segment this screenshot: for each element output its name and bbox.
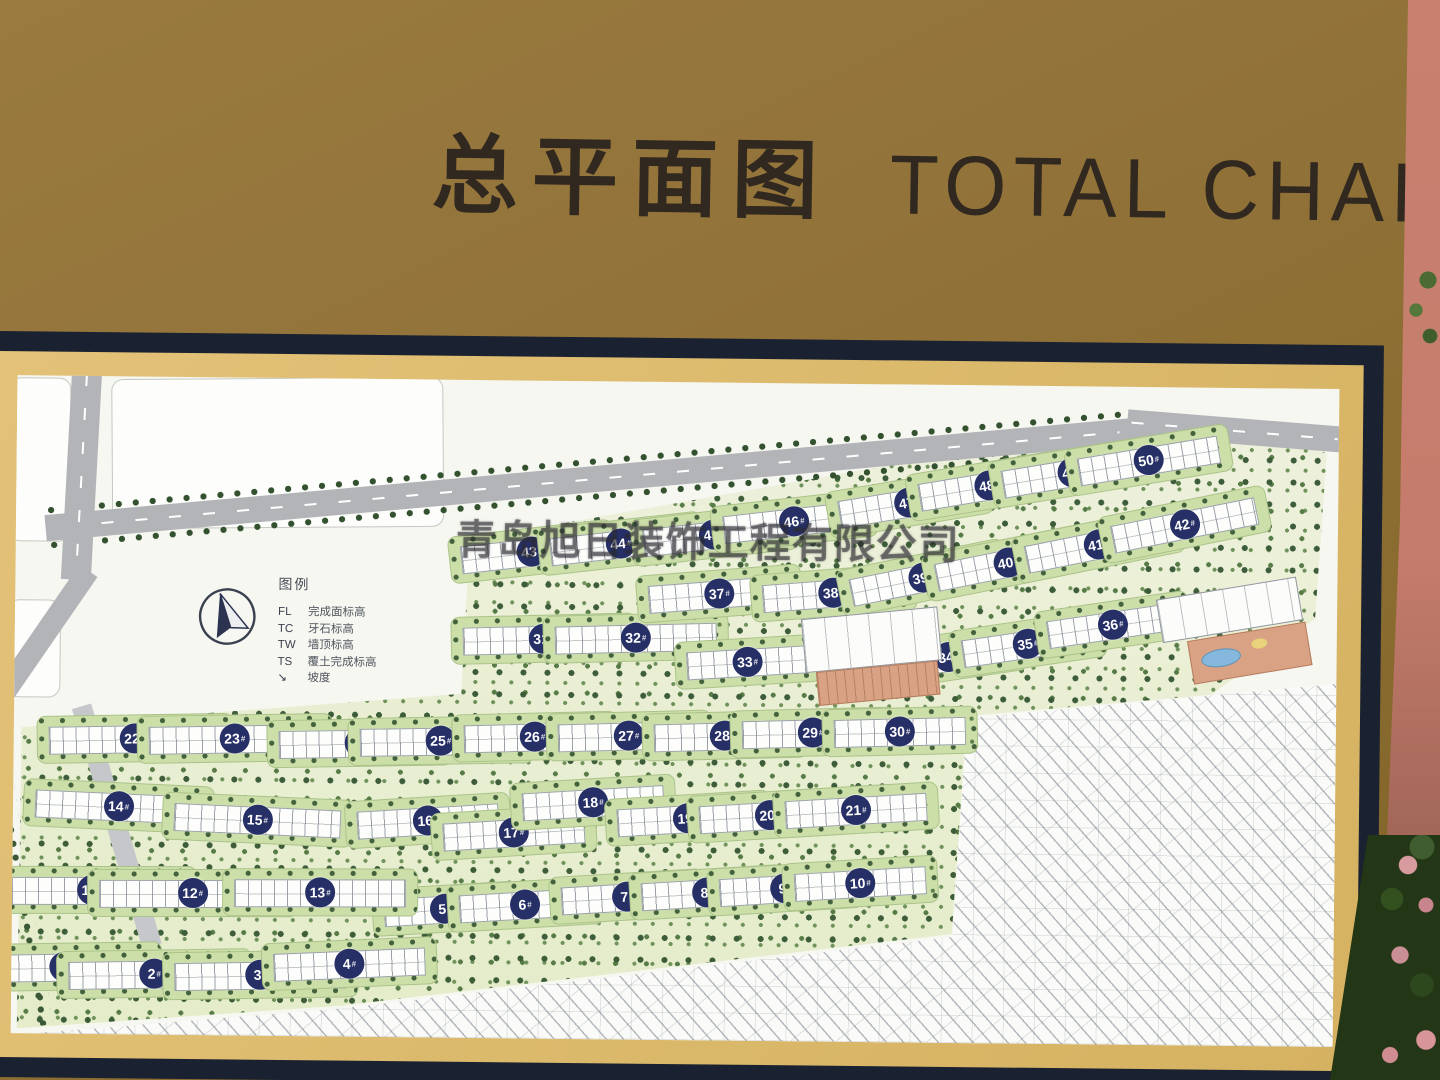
building-number-suffix: # (1118, 619, 1124, 629)
legend-label: 坡度 (307, 670, 330, 687)
building-number-suffix: # (862, 805, 867, 814)
building-number: 36 (1102, 617, 1119, 633)
building-number: 27 (618, 728, 634, 742)
slope-icon: ↘ (277, 670, 307, 687)
building-number: 10 (849, 876, 865, 891)
building-number-suffix: # (124, 802, 129, 811)
building-block: 15# (160, 791, 353, 848)
wall-plant (1406, 250, 1440, 360)
building-number: 18 (582, 795, 598, 810)
building-number: 12 (182, 886, 198, 900)
title-english: TOTAL CHART (889, 137, 1440, 243)
legend-abbr: TC (278, 620, 308, 637)
building-number: 5 (438, 902, 447, 916)
building-number-suffix: # (725, 588, 730, 597)
building-number-suffix: # (156, 969, 161, 978)
building-number: 7 (620, 890, 629, 904)
legend-abbr: FL (278, 604, 308, 621)
title-chinese: 总平面图 (431, 105, 833, 236)
building-number: 21 (845, 803, 861, 818)
building-number: 32 (625, 631, 641, 645)
building-number: 33 (737, 655, 753, 670)
building-number-suffix: # (198, 889, 202, 898)
building-number-suffix: # (753, 657, 758, 666)
building-number-suffix: # (541, 732, 546, 741)
building-number-suffix: # (1154, 454, 1160, 464)
building-number: 2 (148, 967, 156, 981)
legend-label: 墙顶标高 (308, 637, 354, 654)
building-number-suffix: # (527, 900, 532, 909)
legend-label: 牙石标高 (308, 621, 354, 638)
north-compass-icon (188, 578, 267, 660)
building-number: 50 (1137, 452, 1155, 468)
building-number: 37 (708, 586, 725, 601)
building-block: 33# (673, 634, 822, 691)
building-number: 25 (430, 734, 446, 748)
legend-row: TW 墙顶标高 (278, 637, 377, 655)
building-number-suffix: # (635, 731, 640, 740)
building-number-suffix: # (447, 736, 452, 745)
building-block: 21# (772, 781, 941, 839)
road-centerline (75, 375, 88, 575)
building-number-suffix: # (866, 878, 871, 887)
building-number: 28 (714, 728, 730, 742)
building-number: 35 (1016, 636, 1033, 652)
school-facility (798, 599, 957, 713)
building-number: 14 (107, 799, 123, 814)
building-block: 10# (781, 854, 940, 911)
legend-row: TC 牙石标高 (278, 620, 377, 638)
watermark-text: 青岛旭日装饰工程有限公司 (456, 506, 961, 571)
building-number-marker: 13# (305, 877, 335, 907)
map-board-mat: 1#2#3#4#5#6#7#8#9#10#11#12#13#14#15#16#1… (0, 351, 1364, 1071)
legend-label: 完成面标高 (308, 604, 366, 621)
building-number: 23 (224, 731, 240, 745)
legend-row: TS 覆土完成标高 (277, 653, 376, 671)
building-number-suffix: # (906, 727, 911, 736)
legend-row: FL 完成面标高 (278, 604, 377, 622)
building-number: 38 (822, 585, 839, 600)
building-number: 30 (889, 724, 905, 738)
building-number: 3 (254, 968, 262, 982)
building-number: 26 (524, 730, 540, 744)
legend-label: 覆土完成标高 (307, 654, 376, 671)
building-block: 30# (821, 706, 978, 758)
building-number-suffix: # (263, 815, 268, 824)
sign-title: 总平面图 TOTAL CHART (431, 105, 1353, 244)
building-block: 13# (222, 868, 418, 916)
building-number-suffix: # (351, 959, 356, 968)
building-number: 4 (342, 957, 350, 971)
legend-abbr: TW (278, 637, 308, 654)
map-board-frame: 1#2#3#4#5#6#7#8#9#10#11#12#13#14#15#16#1… (0, 331, 1384, 1080)
building-number: 6 (518, 897, 527, 911)
pool (1200, 646, 1242, 670)
legend: 图例 FL 完成面标高 TC 牙石标高 TW 墙顶标高 (277, 574, 377, 688)
building-number: 15 (246, 812, 262, 827)
legend-title: 图例 (278, 574, 377, 595)
building-number: 29 (802, 725, 818, 739)
building-number-suffix: # (241, 734, 246, 743)
building-number-suffix: # (326, 888, 330, 897)
site-plan-map: 1#2#3#4#5#6#7#8#9#10#11#12#13#14#15#16#1… (11, 375, 1340, 1047)
legend-abbr: TS (277, 653, 307, 670)
building-number-marker: 12# (177, 878, 207, 908)
legend-row: ↘ 坡度 (277, 670, 376, 688)
sandpit (1251, 637, 1268, 649)
building-number: 42 (1172, 517, 1190, 534)
building-number-suffix: # (642, 633, 647, 642)
building-number: 13 (310, 885, 326, 899)
building-number: 40 (996, 555, 1014, 572)
sign-photo: 总平面图 TOTAL CHART (0, 0, 1440, 1080)
building-block: 4# (260, 936, 438, 991)
